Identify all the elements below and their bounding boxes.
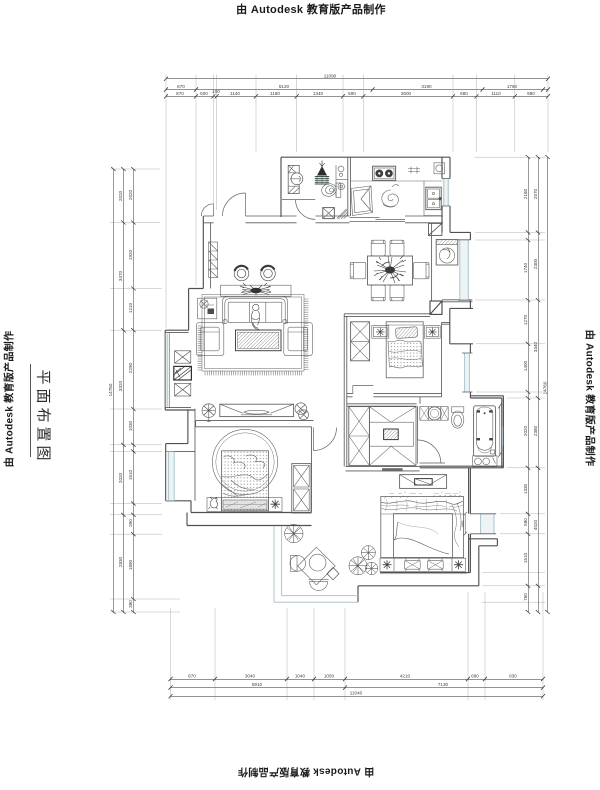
svg-text:7130: 7130 bbox=[438, 682, 449, 687]
svg-text:1140: 1140 bbox=[230, 91, 240, 96]
svg-text:2300: 2300 bbox=[533, 258, 538, 269]
svg-text:4210: 4210 bbox=[400, 674, 411, 679]
svg-text:2570: 2570 bbox=[533, 188, 538, 199]
svg-text:870: 870 bbox=[188, 674, 196, 679]
svg-text:1920: 1920 bbox=[128, 249, 133, 260]
svg-text:4020: 4020 bbox=[533, 519, 538, 530]
svg-text:680: 680 bbox=[471, 674, 479, 679]
svg-text:2380: 2380 bbox=[533, 425, 538, 436]
svg-text:14760: 14760 bbox=[108, 383, 113, 396]
svg-text:11040: 11040 bbox=[350, 691, 363, 696]
svg-text:1890: 1890 bbox=[128, 559, 133, 570]
svg-text:830: 830 bbox=[509, 674, 517, 679]
svg-text:14760: 14760 bbox=[542, 381, 547, 394]
svg-text:2290: 2290 bbox=[128, 362, 133, 373]
svg-text:2180: 2180 bbox=[523, 188, 528, 199]
svg-text:390: 390 bbox=[128, 519, 133, 527]
svg-text:5910: 5910 bbox=[252, 682, 263, 687]
svg-text:1510: 1510 bbox=[128, 469, 133, 480]
svg-text:900: 900 bbox=[460, 520, 465, 527]
svg-text:5120: 5120 bbox=[279, 84, 290, 89]
svg-text:1330: 1330 bbox=[523, 483, 528, 494]
svg-text:870: 870 bbox=[176, 91, 184, 96]
svg-text:500: 500 bbox=[200, 91, 208, 96]
svg-text:2830: 2830 bbox=[118, 556, 123, 567]
svg-text:2020: 2020 bbox=[128, 189, 133, 200]
svg-text:2020: 2020 bbox=[118, 472, 123, 483]
svg-text:1030: 1030 bbox=[128, 420, 133, 431]
svg-text:1270: 1270 bbox=[523, 314, 528, 325]
svg-text:1110: 1110 bbox=[491, 91, 501, 96]
svg-text:1740: 1740 bbox=[523, 262, 528, 273]
svg-text:2020: 2020 bbox=[523, 425, 528, 436]
svg-text:3320: 3320 bbox=[118, 380, 123, 391]
svg-text:1760: 1760 bbox=[507, 84, 518, 89]
svg-text:2020: 2020 bbox=[118, 190, 123, 201]
svg-text:1510: 1510 bbox=[523, 552, 528, 563]
svg-text:100: 100 bbox=[212, 89, 220, 94]
svg-text:1050: 1050 bbox=[324, 674, 335, 679]
svg-text:3340: 3340 bbox=[533, 341, 538, 352]
svg-text:2600: 2600 bbox=[401, 91, 412, 96]
svg-text:3190: 3190 bbox=[421, 84, 432, 89]
svg-text:870: 870 bbox=[177, 84, 185, 89]
svg-text:380: 380 bbox=[128, 600, 133, 608]
svg-text:11090: 11090 bbox=[324, 73, 337, 78]
svg-text:680: 680 bbox=[460, 91, 468, 96]
svg-text:3040: 3040 bbox=[245, 674, 256, 679]
svg-text:590: 590 bbox=[348, 91, 356, 96]
svg-text:1040: 1040 bbox=[295, 674, 306, 679]
svg-text:3470: 3470 bbox=[118, 270, 123, 281]
svg-text:580: 580 bbox=[523, 518, 528, 526]
svg-text:760: 760 bbox=[523, 593, 528, 601]
svg-text:980: 980 bbox=[527, 91, 535, 96]
svg-text:1400: 1400 bbox=[523, 360, 528, 371]
svg-text:1210: 1210 bbox=[128, 302, 133, 313]
svg-text:1180: 1180 bbox=[270, 91, 280, 96]
svg-text:1340: 1340 bbox=[313, 91, 324, 96]
